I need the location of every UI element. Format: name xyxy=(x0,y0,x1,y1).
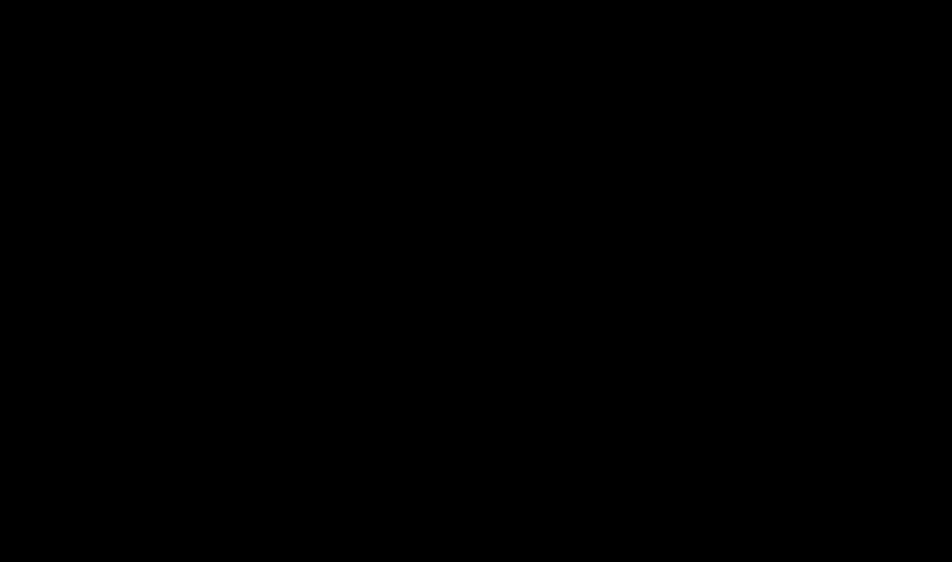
pcb-canvas[interactable] xyxy=(0,0,952,562)
pcb-layout-drawing xyxy=(0,0,952,562)
